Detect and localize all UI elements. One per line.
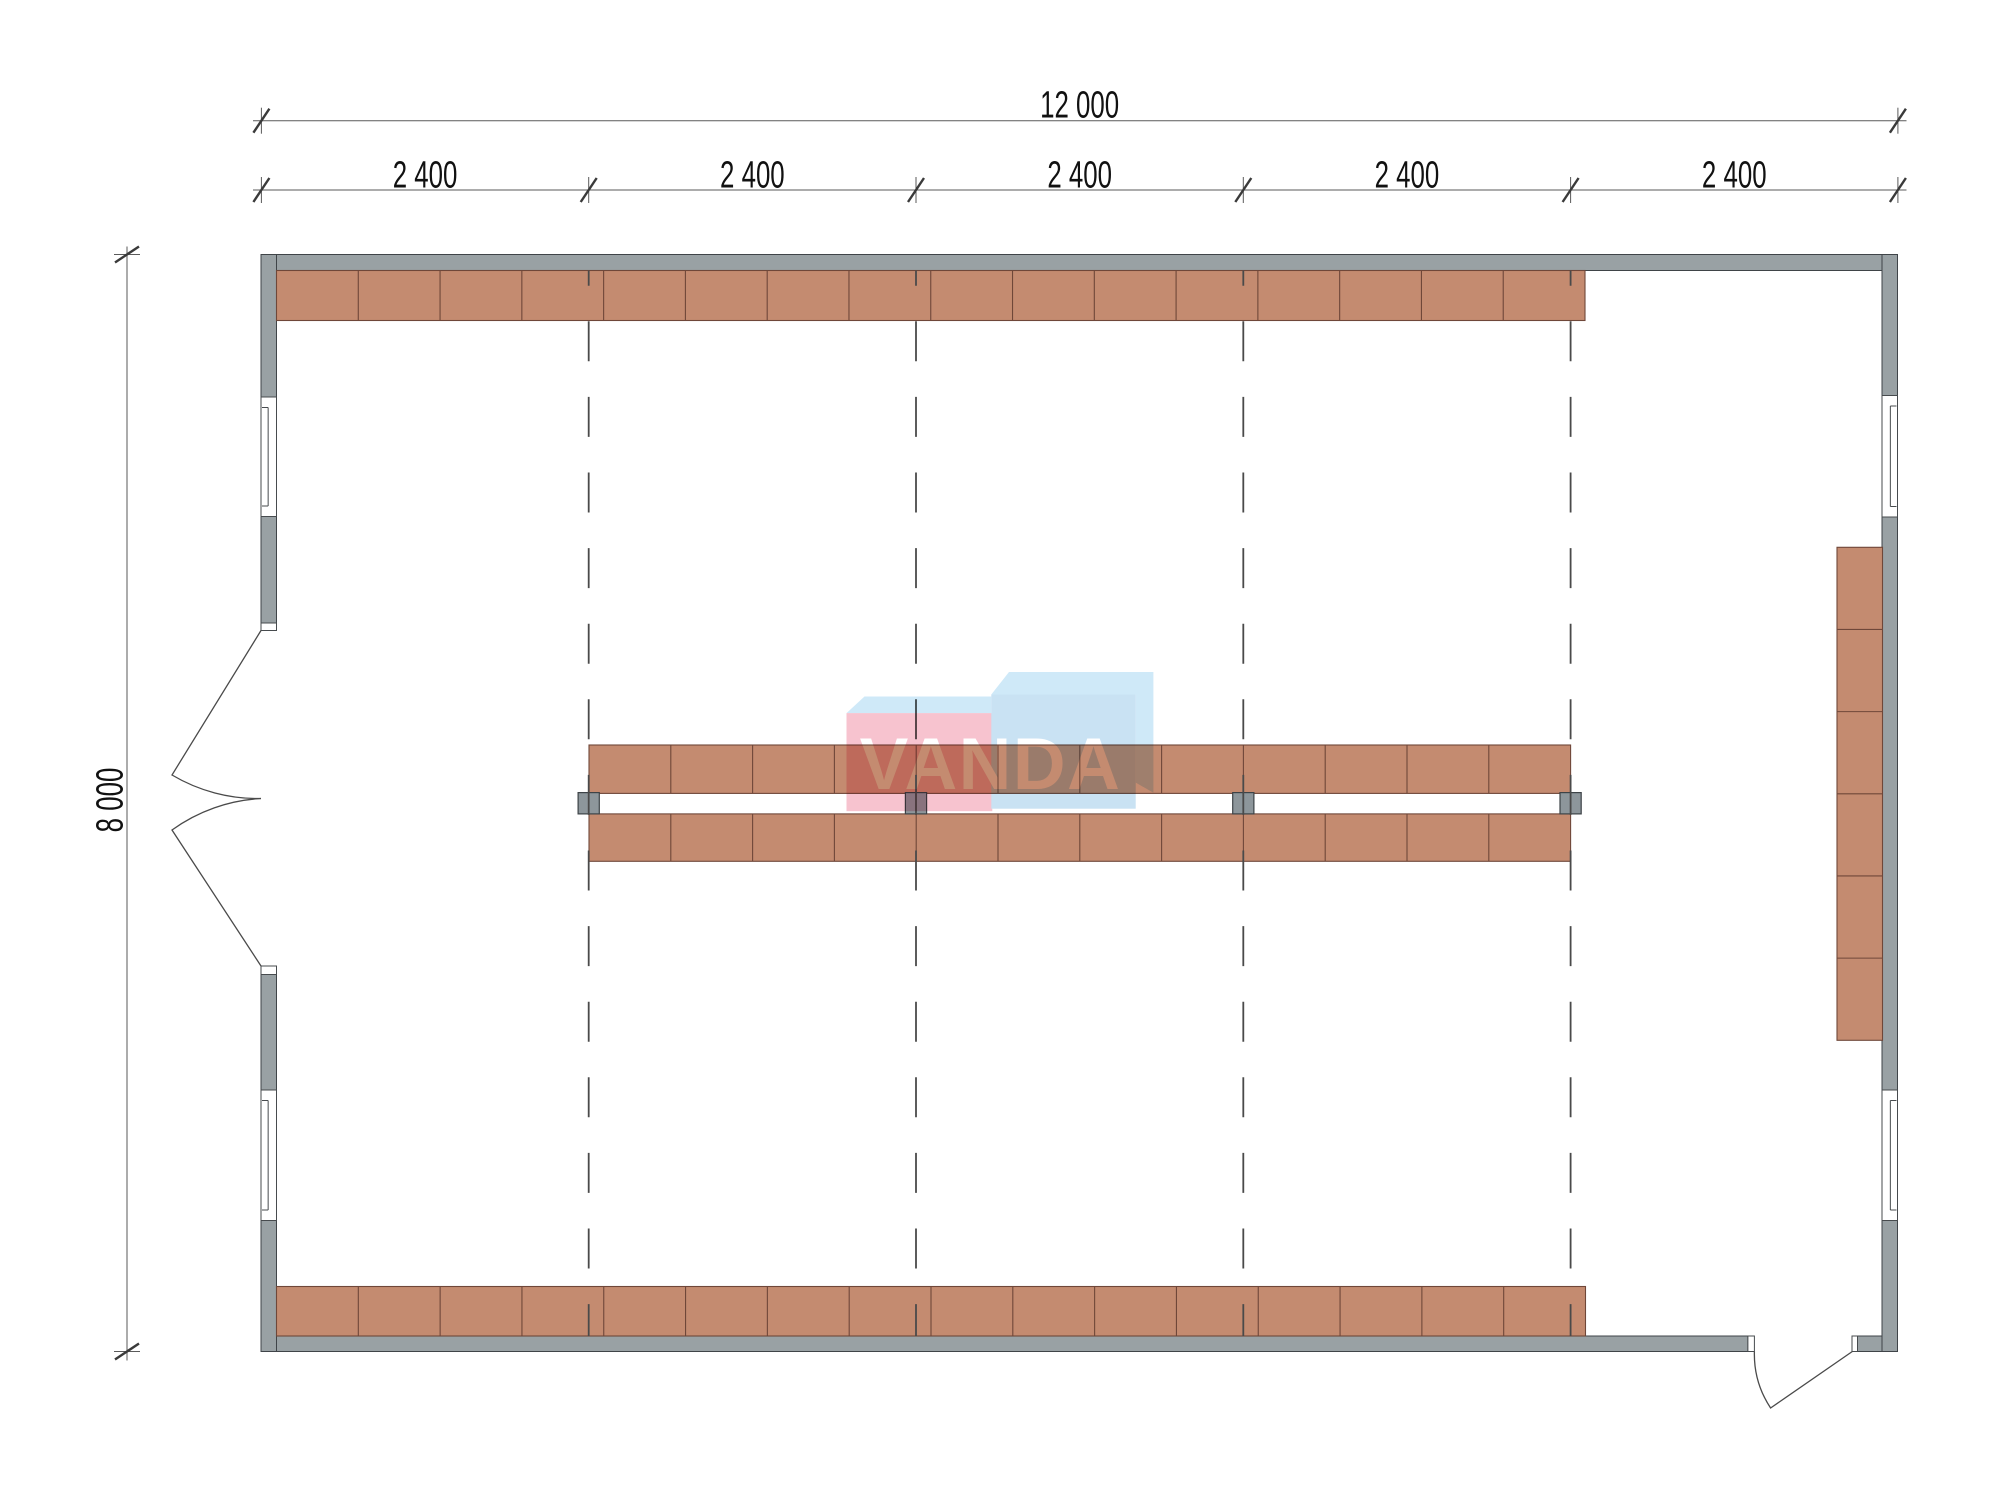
svg-text:2 400: 2 400 [1375, 153, 1440, 195]
svg-text:2 400: 2 400 [1047, 153, 1112, 195]
svg-text:12 000: 12 000 [1040, 83, 1119, 125]
svg-text:2 400: 2 400 [393, 153, 458, 195]
svg-text:2 400: 2 400 [1702, 153, 1767, 195]
svg-text:VANDA: VANDA [860, 724, 1122, 805]
svg-text:2 400: 2 400 [720, 153, 785, 195]
svg-text:8 000: 8 000 [89, 768, 131, 833]
